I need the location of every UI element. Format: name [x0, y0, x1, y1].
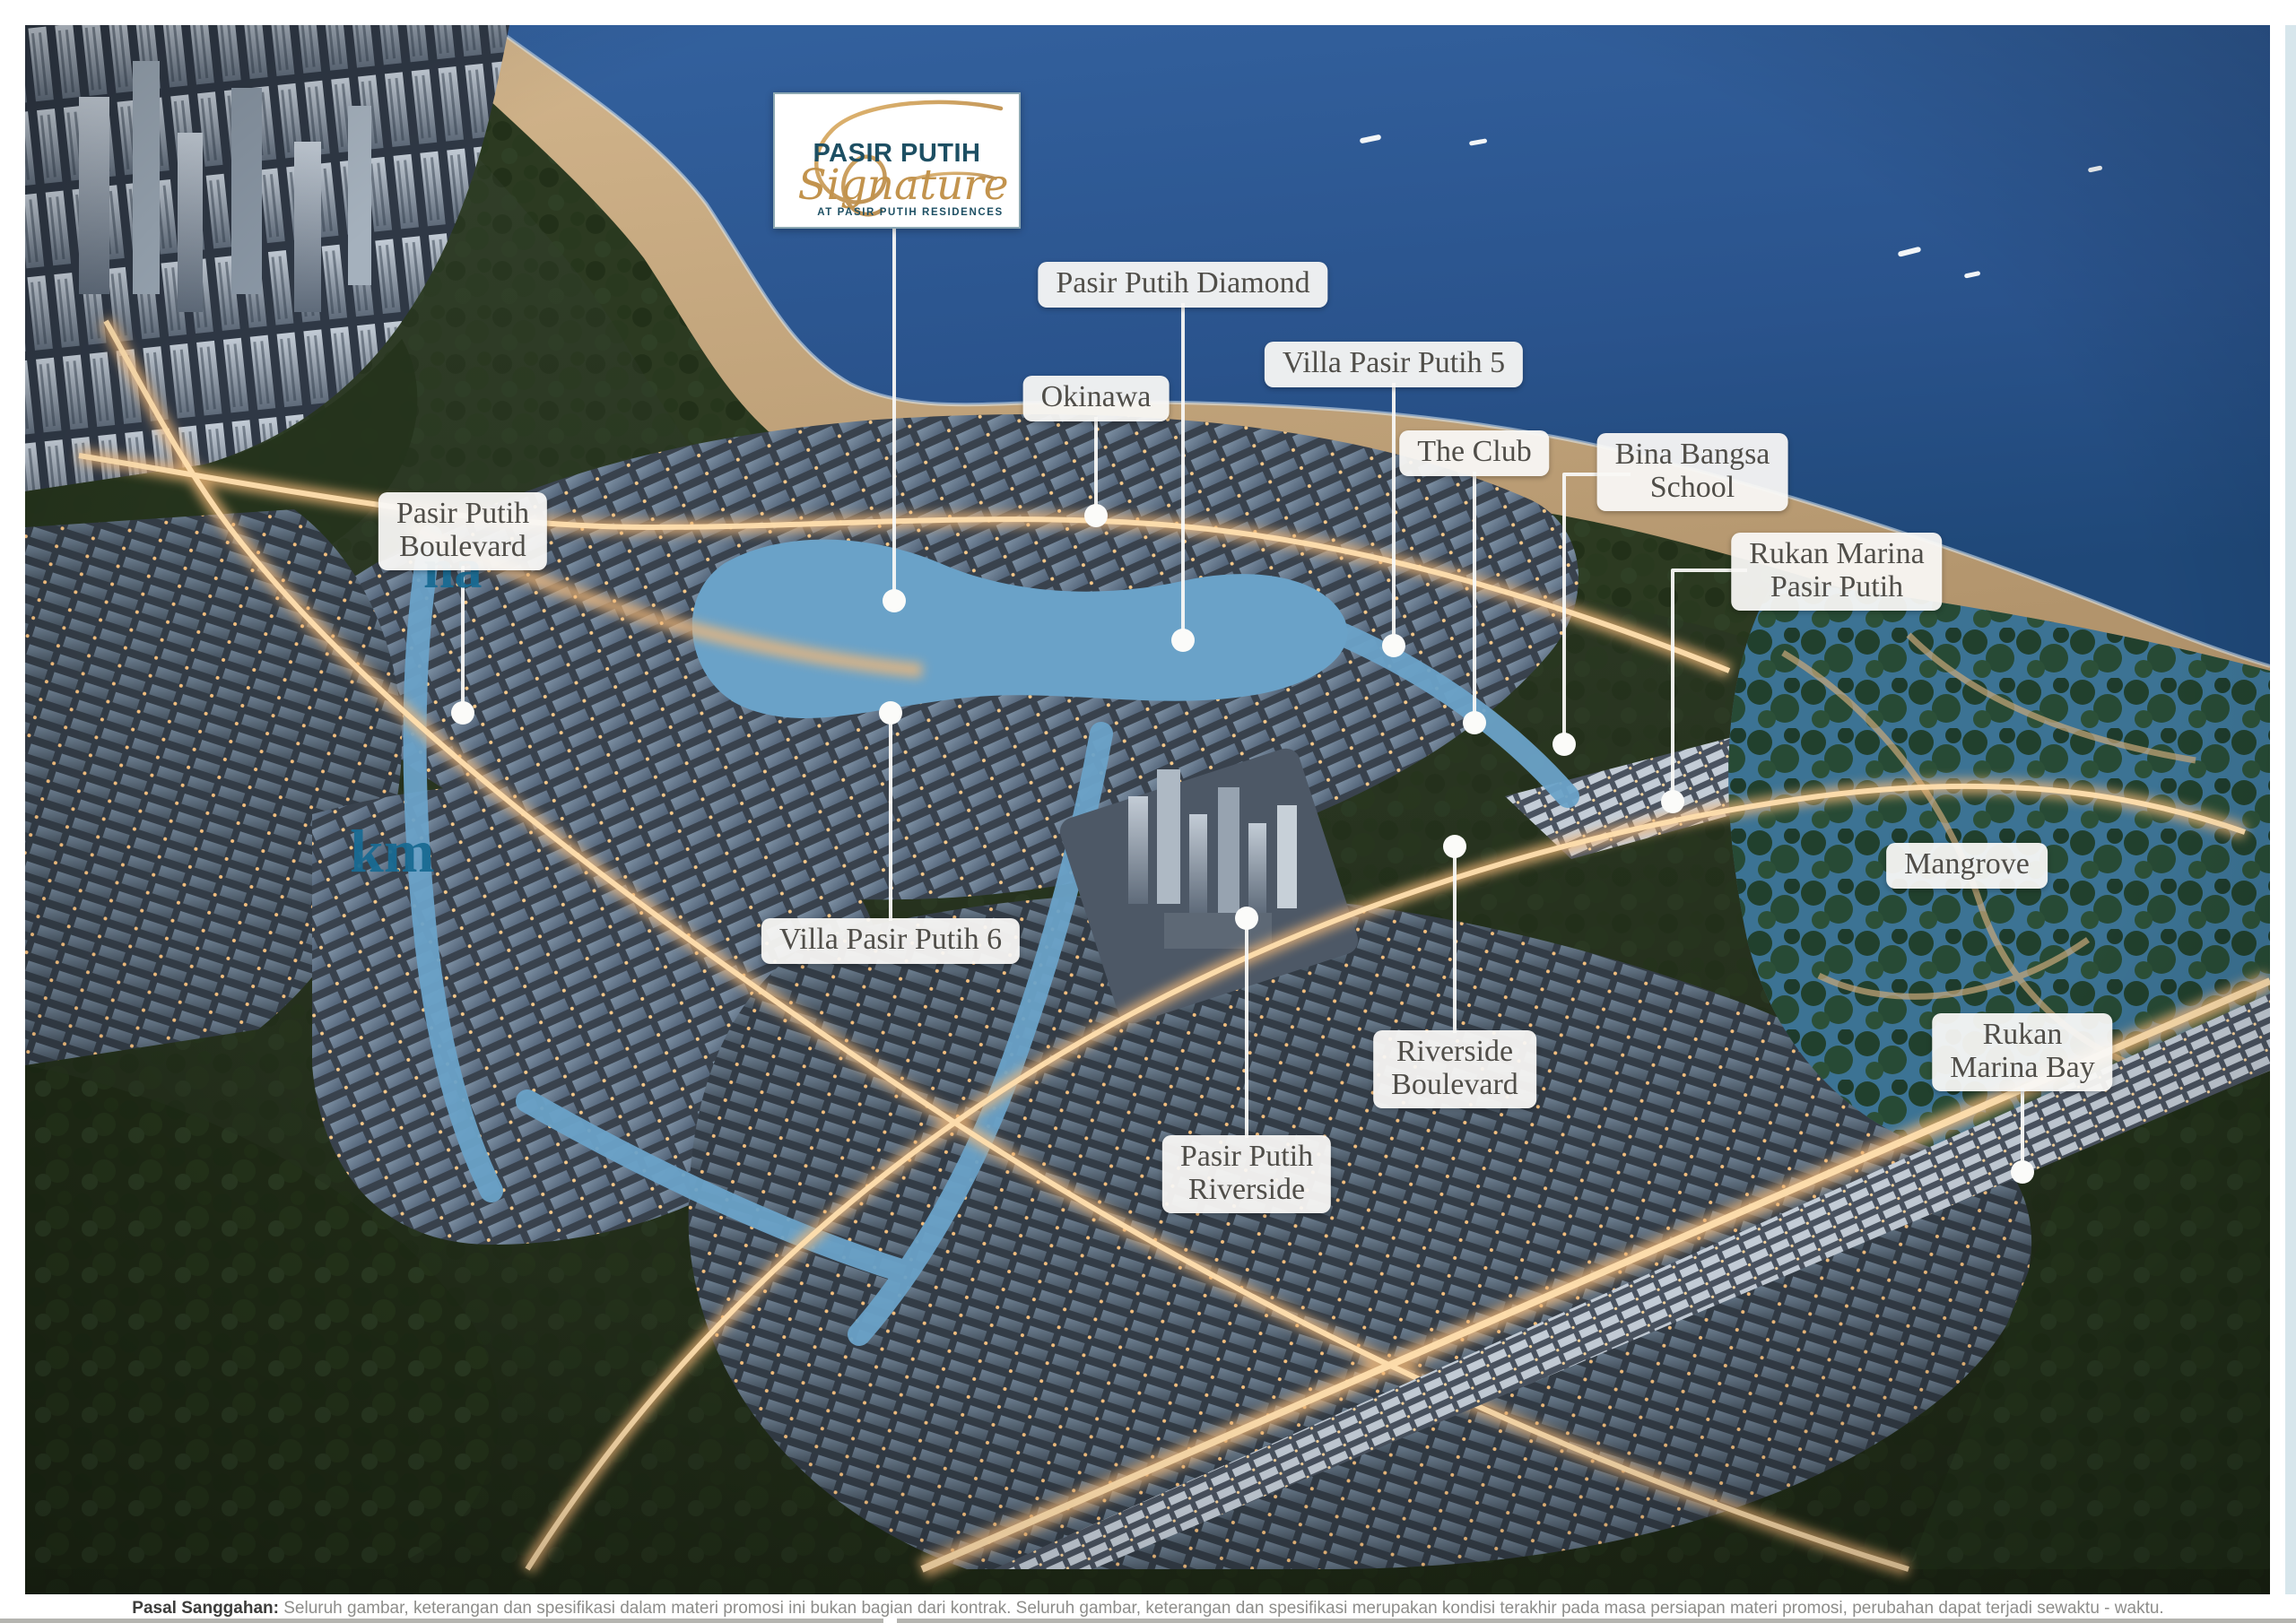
map-label-text: Riverside: [1391, 1036, 1518, 1069]
map-label-rukan-marina-bay: RukanMarina Bay: [1932, 1013, 2112, 1091]
disclaimer-body: Seluruh gambar, keterangan dan spesifika…: [279, 1599, 2164, 1618]
map-label-rukan-marina-pasir-putih: Rukan MarinaPasir Putih: [1731, 533, 1942, 611]
logo-script-text: Signature: [775, 161, 1031, 210]
logo-tagline-text: AT PASIR PUTIH RESIDENCES: [802, 207, 1019, 218]
map-label-villa-pasir-putih-6: Villa Pasir Putih 6: [761, 918, 1020, 964]
map-label-text: Villa Pasir Putih 6: [779, 924, 1002, 957]
map-label-bina-bangsa-school: Bina BangsaSchool: [1597, 433, 1788, 511]
aerial-photo: nakm PASIR PUTIH Signature AT PASIR PUTI…: [25, 25, 2270, 1594]
bottom-edge-strip-left: [0, 1619, 883, 1623]
disclaimer-bar: Pasal Sanggahan: Seluruh gambar, keteran…: [0, 1597, 2296, 1619]
map-label-text: Rukan Marina: [1749, 538, 1924, 571]
map-label-villa-pasir-putih-5: Villa Pasir Putih 5: [1265, 342, 1523, 387]
map-label-okinawa: Okinawa: [1023, 376, 1170, 421]
map-label-text: Boulevard: [396, 531, 529, 564]
disclaimer-lead: Pasal Sanggahan:: [132, 1599, 279, 1618]
aerial-photo-artwork: [25, 25, 2270, 1594]
map-label-text: Bina Bangsa: [1615, 438, 1770, 472]
map-label-text: Okinawa: [1041, 381, 1152, 414]
page: nakm PASIR PUTIH Signature AT PASIR PUTI…: [0, 0, 2296, 1623]
map-label-text: Boulevard: [1391, 1069, 1518, 1102]
map-label-riverside-boulevard: RiversideBoulevard: [1373, 1030, 1536, 1108]
map-label-pasir-putih-riverside: Pasir PutihRiverside: [1162, 1135, 1331, 1213]
map-label-text: Mangrove: [1904, 848, 2030, 881]
vignette: [25, 25, 2270, 1594]
map-label-the-club: The Club: [1399, 430, 1549, 476]
map-label-text: Pasir Putih: [1180, 1141, 1313, 1174]
map-label-text: The Club: [1417, 436, 1531, 469]
map-label-text: Villa Pasir Putih 5: [1283, 347, 1505, 380]
bottom-edge-strip-right: [897, 1619, 2296, 1623]
map-label-pasir-putih-diamond: Pasir Putih Diamond: [1038, 262, 1327, 308]
map-label-text: School: [1615, 472, 1770, 505]
map-label-text: Riverside: [1180, 1174, 1313, 1207]
map-label-text: Pasir Putih Diamond: [1056, 267, 1309, 300]
map-label-text: Pasir Putih: [396, 498, 529, 531]
map-label-text: Pasir Putih: [1749, 571, 1924, 604]
map-label-pasir-putih-boulevard: Pasir PutihBoulevard: [378, 492, 547, 570]
map-label-mangrove: Mangrove: [1886, 843, 2048, 889]
adjacent-page-edge: [2285, 25, 2296, 1594]
brand-logo-card: PASIR PUTIH Signature AT PASIR PUTIH RES…: [773, 92, 1021, 229]
watermark-text: km: [350, 816, 434, 887]
map-label-text: Rukan: [1950, 1019, 2094, 1052]
map-label-text: Marina Bay: [1950, 1052, 2094, 1085]
